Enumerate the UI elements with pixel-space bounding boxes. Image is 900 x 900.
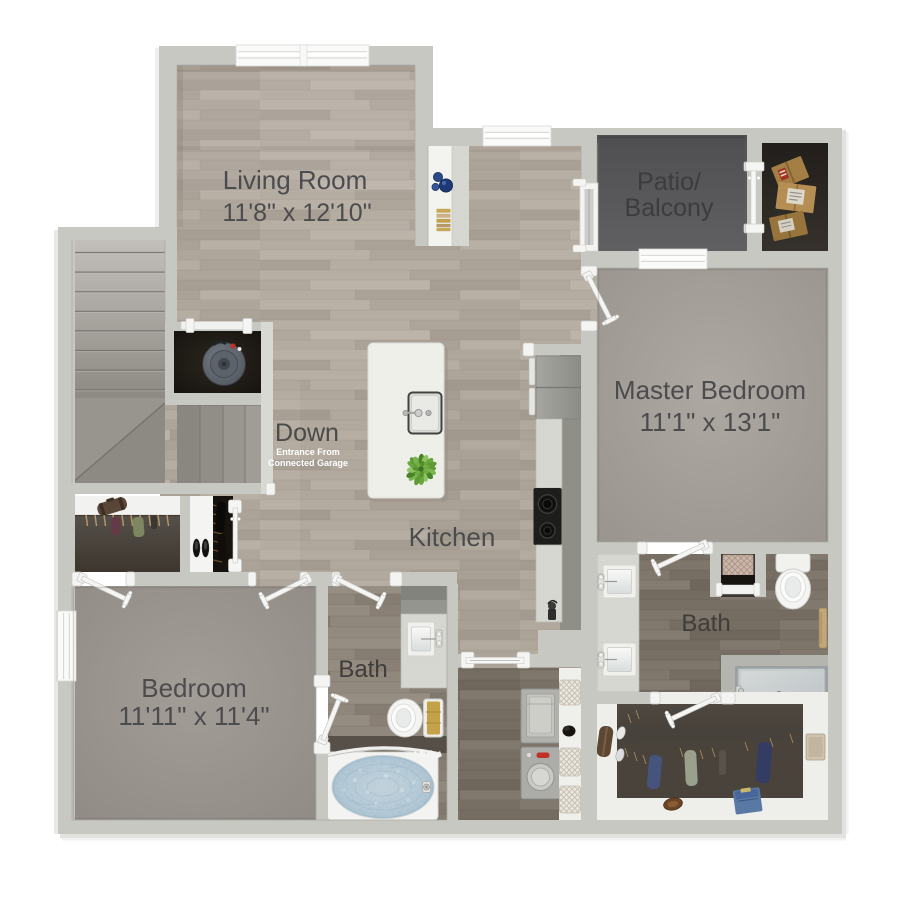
svg-text:Connected Garage: Connected Garage <box>268 458 348 468</box>
svg-text:Bedroom: Bedroom <box>141 673 247 703</box>
svg-text:Kitchen: Kitchen <box>409 522 496 552</box>
svg-text:Bath: Bath <box>681 610 730 637</box>
svg-text:Patio/: Patio/ <box>637 168 701 196</box>
svg-text:11'8" x 12'10": 11'8" x 12'10" <box>222 199 371 227</box>
svg-text:Master Bedroom: Master Bedroom <box>614 375 806 405</box>
svg-text:Bath: Bath <box>338 656 387 683</box>
svg-text:Entrance From: Entrance From <box>276 447 340 457</box>
svg-text:11'1" x 13'1": 11'1" x 13'1" <box>640 407 781 437</box>
svg-text:Balcony: Balcony <box>625 194 714 222</box>
svg-text:Down: Down <box>275 419 339 447</box>
svg-text:Living Room: Living Room <box>223 165 368 195</box>
svg-text:11'11" x 11'4": 11'11" x 11'4" <box>118 701 269 731</box>
